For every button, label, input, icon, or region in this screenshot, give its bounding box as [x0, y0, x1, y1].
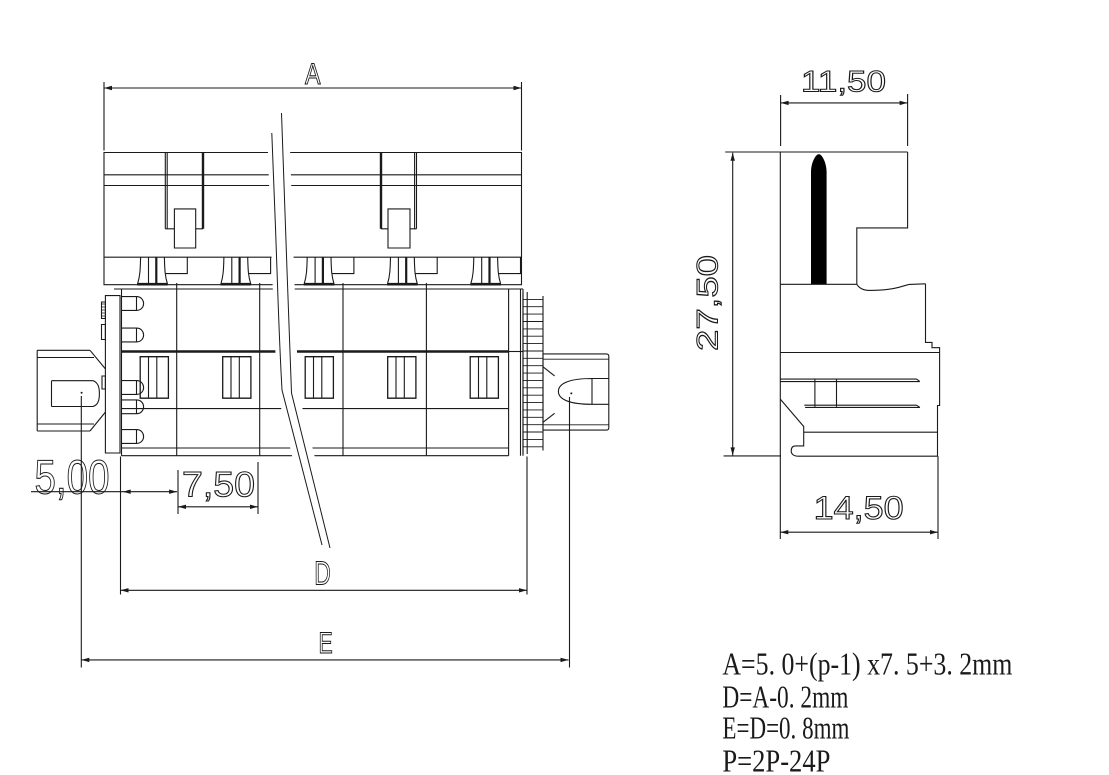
- svg-text:14,50: 14,50: [814, 490, 904, 526]
- svg-text:7,50: 7,50: [182, 465, 255, 504]
- svg-text:E=D=0. 8mm: E=D=0. 8mm: [722, 710, 849, 746]
- svg-text:5,00: 5,00: [35, 452, 110, 505]
- svg-text:27,50: 27,50: [692, 255, 725, 351]
- svg-text:A: A: [305, 58, 321, 91]
- svg-text:E: E: [319, 627, 333, 660]
- svg-text:A=5. 0+(p-1) x7. 5+3. 2mm: A=5. 0+(p-1) x7. 5+3. 2mm: [722, 646, 1012, 682]
- svg-text:P=2P-24P: P=2P-24P: [722, 743, 830, 775]
- svg-text:D: D: [314, 554, 331, 591]
- svg-text:11,50: 11,50: [801, 65, 886, 98]
